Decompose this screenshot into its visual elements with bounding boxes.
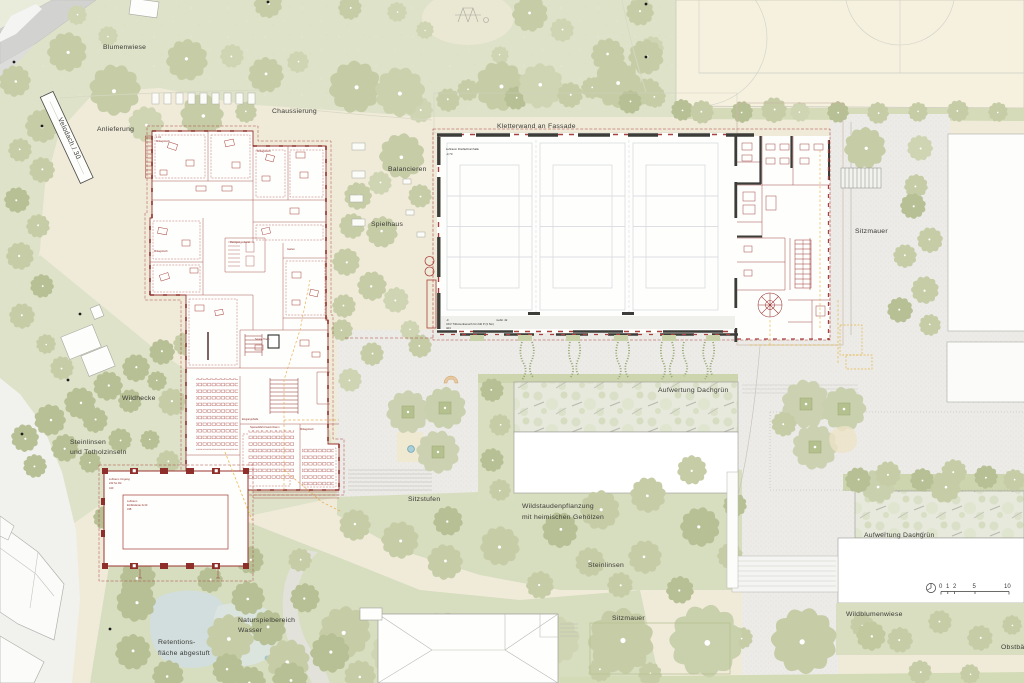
svg-text:Einfänderau 0x10: Einfänderau 0x10 bbox=[127, 503, 148, 507]
svg-text:Mittagstisch: Mittagstisch bbox=[300, 427, 314, 431]
svg-text:424: 424 bbox=[446, 326, 451, 330]
svg-text:1.01: 1.01 bbox=[156, 135, 162, 139]
svg-text:Wildblumenwiese: Wildblumenwiese bbox=[846, 611, 903, 618]
svg-text:Steinlinsen: Steinlinsen bbox=[588, 562, 624, 569]
svg-text:Wildhecke: Wildhecke bbox=[122, 395, 156, 402]
svg-text:Obstbä: Obstbä bbox=[1001, 644, 1024, 651]
svg-text:Reinigungsdienst: Reinigungsdienst bbox=[230, 240, 250, 244]
svg-text:Blumenwiese: Blumenwiese bbox=[103, 44, 146, 51]
svg-text:Wasser: Wasser bbox=[238, 627, 263, 634]
svg-text:Luftraum Umgang: Luftraum Umgang bbox=[109, 477, 130, 481]
svg-text:Sitzmauer: Sitzmauer bbox=[855, 228, 888, 235]
svg-text:Kletterwand an Fassade: Kletterwand an Fassade bbox=[497, 123, 576, 130]
svg-text:Mittagstisch: Mittagstisch bbox=[156, 139, 170, 143]
svg-text:Sitzstufen: Sitzstufen bbox=[408, 496, 440, 503]
svg-text:Mittagstisch: Mittagstisch bbox=[154, 249, 168, 253]
svg-text:-3,70: -3,70 bbox=[446, 152, 453, 156]
svg-text:Aufwertung Dachgrün: Aufwertung Dachgrün bbox=[658, 387, 729, 394]
svg-text:Steinlinsen: Steinlinsen bbox=[70, 439, 106, 446]
svg-text:UKV Tribünenbereich für 240 P: UKV Tribünenbereich für 240 P (3 Stn) bbox=[446, 322, 494, 326]
svg-text:438: 438 bbox=[127, 507, 132, 511]
svg-text:242 So Rd: 242 So Rd bbox=[109, 481, 122, 485]
svg-text:Balancieren: Balancieren bbox=[388, 166, 427, 173]
svg-text:Chaussierung: Chaussierung bbox=[272, 108, 317, 115]
svg-text:10: 10 bbox=[1004, 584, 1011, 590]
svg-text:Speise/Mehrzweck Raum: Speise/Mehrzweck Raum bbox=[250, 425, 279, 429]
svg-text:Sonne Tisch: Sonne Tisch bbox=[255, 337, 270, 341]
svg-text:Wildstaudenpflanzung: Wildstaudenpflanzung bbox=[522, 503, 594, 510]
svg-text:Retentions-: Retentions- bbox=[158, 639, 196, 646]
svg-text:440: 440 bbox=[109, 486, 114, 490]
svg-text:und Totholzinseln: und Totholzinseln bbox=[70, 449, 127, 456]
svg-text:mit heimischen Gehölzen: mit heimischen Gehölzen bbox=[522, 514, 604, 521]
svg-text:Mittagstisch: Mittagstisch bbox=[257, 149, 271, 153]
svg-text:Luftraum: Luftraum bbox=[127, 499, 137, 503]
svg-text:Naturspielbereich: Naturspielbereich bbox=[238, 617, 295, 624]
svg-text:Luftraum Dreifachturnhalle: Luftraum Dreifachturnhalle bbox=[446, 147, 479, 151]
svg-text:fläche abgestuft: fläche abgestuft bbox=[158, 650, 210, 657]
svg-text:mobil. 42: mobil. 42 bbox=[496, 318, 508, 322]
svg-text:Sitzmauer: Sitzmauer bbox=[612, 615, 645, 622]
svg-text:Eingangshalle: Eingangshalle bbox=[242, 417, 259, 421]
svg-text:Aufwertung Dachgrün: Aufwertung Dachgrün bbox=[864, 532, 935, 539]
svg-text:Anlieferung: Anlieferung bbox=[97, 126, 134, 133]
svg-text:Garten: Garten bbox=[287, 247, 295, 251]
svg-text:Spielhaus: Spielhaus bbox=[371, 221, 403, 228]
